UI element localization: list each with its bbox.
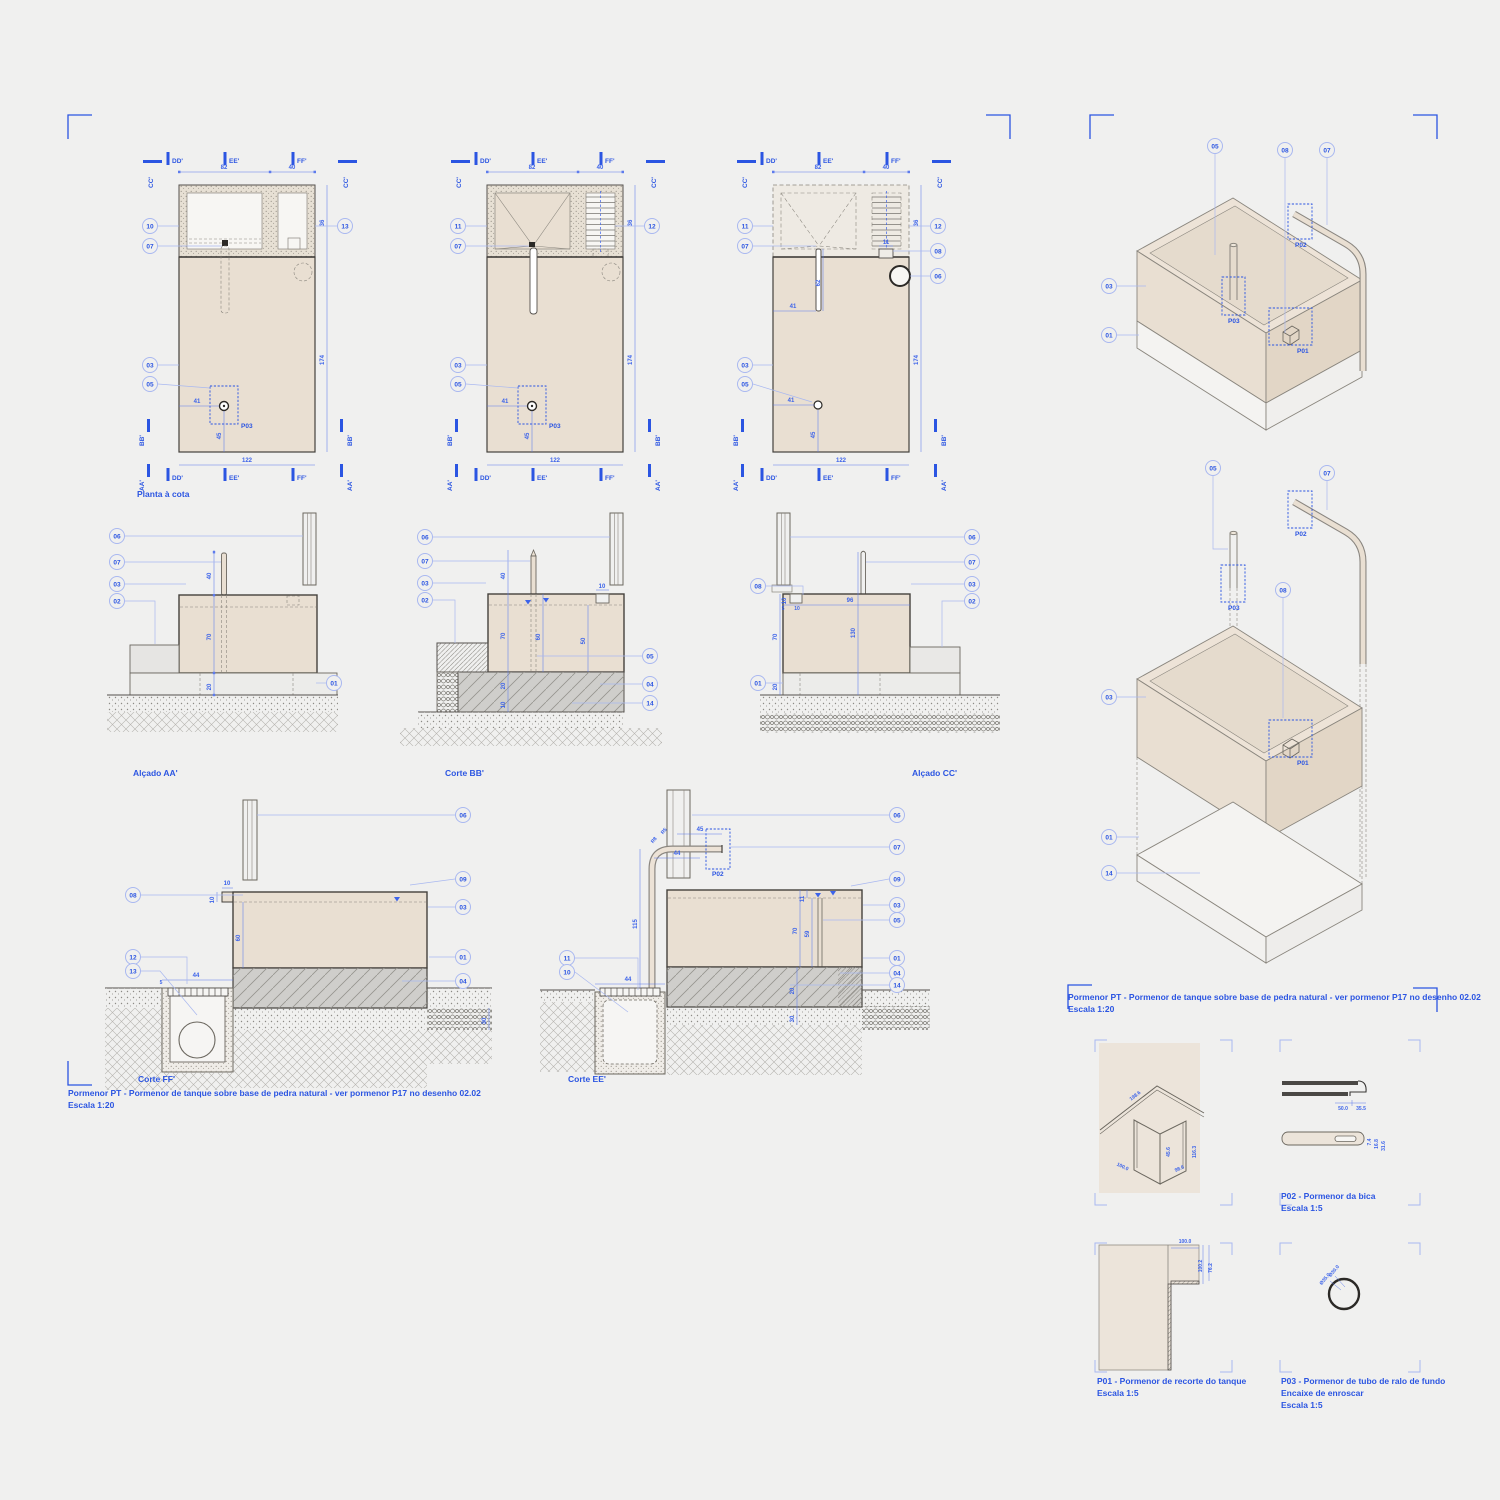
callout: 02: [421, 597, 429, 604]
dim-label: 174: [628, 354, 634, 365]
section-label-cc: CC': [937, 177, 944, 188]
section-label-bb: BB': [941, 435, 948, 446]
dim-label: 116.3: [1192, 1146, 1198, 1158]
detail-caption: P02 - Pormenor da bica: [1281, 1191, 1376, 1201]
wall: [610, 513, 623, 585]
spout-pipe: [531, 556, 536, 594]
axon-caption-line1: Pormenor PT - Pormenor de tanque sobre b…: [1068, 992, 1481, 1002]
stone-block: [437, 672, 458, 712]
callout: 14: [893, 982, 901, 989]
dim-label: 115: [633, 919, 639, 929]
callout: 03: [968, 581, 976, 588]
p03-detail-box: [1221, 565, 1245, 602]
drawing-sheet-svg: CC' CC' DD' EE' FF' DD' EE' FF' BB' BB' …: [0, 0, 1500, 1500]
dim-label: 40: [597, 165, 604, 171]
channel-grate: [168, 988, 228, 996]
detail-p01-recorte: 100.0 100.2 76.2 P01 - Pormenor de recor…: [1097, 1239, 1247, 1398]
callout: 12: [934, 223, 942, 230]
dim-label: 5: [782, 606, 785, 612]
dim-label: 36: [320, 219, 326, 226]
detail-caption: P01 - Pormenor de recorte do tanque: [1097, 1376, 1247, 1386]
sheet-caption-line2: Escala 1:20: [68, 1100, 115, 1110]
callout: 05: [146, 381, 154, 388]
p03-label: P03: [1228, 605, 1240, 612]
dim-label: 11: [800, 895, 806, 902]
dim-label: 62: [816, 279, 822, 286]
architectural-sheet: CC' CC' DD' EE' FF' DD' EE' FF' BB' BB' …: [0, 0, 1500, 1500]
base-slab: [783, 673, 960, 695]
section-label-cc: CC': [456, 177, 463, 188]
callout: 09: [893, 876, 901, 883]
detail-caption: P03 - Pormenor de tubo de ralo de fundo: [1281, 1376, 1445, 1386]
dim-label: 7.4: [1367, 1138, 1373, 1145]
view-title: Alçado CC': [912, 768, 957, 778]
callout: 14: [1105, 870, 1113, 877]
callout: 05: [1211, 143, 1219, 150]
dim-label: R8: [650, 836, 659, 845]
section-label-ff: FF': [605, 475, 615, 482]
callout: 03: [113, 581, 121, 588]
dim-label: 60: [536, 633, 542, 640]
dim-label: 41: [788, 398, 795, 404]
dim-label: 20: [207, 683, 213, 690]
base-slab: [130, 673, 337, 695]
dim-label: 82: [815, 165, 822, 171]
section-label-bb: BB': [139, 435, 146, 446]
callout: 06: [968, 534, 976, 541]
section-label-aa: AA': [733, 480, 740, 491]
callout: 05: [646, 653, 654, 660]
dim-label: 100.2: [1198, 1260, 1204, 1273]
tank: [233, 892, 427, 968]
dim-label: 44: [674, 851, 681, 857]
axon2-base-slab: [1137, 802, 1362, 963]
dim-label: 70: [793, 927, 799, 934]
dim-label: 44: [193, 973, 200, 979]
section-label-ee: EE': [823, 475, 834, 482]
callout: 07: [893, 844, 901, 851]
section-label-ee: EE': [537, 475, 548, 482]
callout: 10: [563, 969, 571, 976]
detail-caption: Escala 1:5: [1281, 1400, 1323, 1410]
callout: 01: [459, 954, 467, 961]
ground-subgrade: [400, 728, 662, 746]
callout: 05: [893, 917, 901, 924]
ground-gravel: [427, 988, 492, 1008]
axon2-spout-outline: [1294, 502, 1363, 664]
section-label-ff: FF': [891, 475, 901, 482]
dim-label: 10: [210, 896, 216, 903]
dim-label: 96: [847, 598, 854, 604]
dim-label: 10: [501, 701, 507, 708]
section-label-dd: DD': [480, 158, 491, 165]
dim-label: 40: [207, 572, 213, 579]
dim-label: 45: [217, 432, 223, 439]
tank: [488, 594, 624, 672]
callout: 01: [330, 680, 338, 687]
callout: 05: [741, 381, 749, 388]
dim-label: 41: [194, 399, 201, 405]
tank-ledge: [222, 892, 233, 902]
elevation-cc: 10 5 10 96 130 70 20 08 01 06 07 03 02 A…: [751, 513, 1001, 778]
callout: 14: [646, 700, 654, 707]
callout: 01: [1105, 332, 1113, 339]
callout: 04: [459, 978, 467, 985]
plan1-linework: [179, 185, 315, 452]
drain-plug: [814, 401, 822, 409]
callout: 04: [893, 970, 901, 977]
dim-label: 45: [697, 827, 704, 833]
callout: 12: [129, 954, 137, 961]
dim-label: 122: [836, 458, 847, 464]
ground-subgrade: [107, 712, 338, 732]
section-label-dd: DD': [766, 475, 777, 482]
overflow-notch: [879, 249, 893, 258]
dim-label: 40: [883, 165, 890, 171]
dim-label: 20: [790, 987, 796, 994]
callout: 13: [341, 223, 349, 230]
faucet-pipe-section: [890, 266, 910, 286]
dim-label: 45.6: [1166, 1147, 1172, 1157]
callout: 03: [741, 362, 749, 369]
tank-corner-cut: [1099, 1245, 1199, 1370]
dim-label: 45: [811, 431, 817, 438]
callout: 07: [968, 559, 976, 566]
section-label-ff: FF': [297, 158, 307, 165]
view-title: Corte FF': [138, 1074, 175, 1084]
p01-label: P01: [1297, 348, 1309, 355]
section-label-cc: CC': [343, 177, 350, 188]
drain-outlet: [529, 242, 535, 247]
sheet-caption-line1: Pormenor PT - Pormenor de tanque sobre b…: [68, 1088, 481, 1098]
callout: 06: [421, 534, 429, 541]
callout: 07: [454, 243, 462, 250]
section-label-ee: EE': [823, 158, 834, 165]
stone-step: [130, 645, 179, 673]
stone-step: [910, 647, 960, 673]
section-label-cc: CC': [651, 177, 658, 188]
callout: 13: [129, 968, 137, 975]
section-label-bb: BB': [447, 435, 454, 446]
dim-label: 59: [805, 930, 811, 937]
detail-p03-tubo: Ø35.0 Ø30.0 P03 - Pormenor de tubo de ra…: [1281, 1264, 1445, 1410]
dim-label: 130: [851, 627, 857, 638]
dim-label: 100.0: [1179, 1239, 1192, 1245]
dim-label: 50: [581, 637, 587, 644]
dim-label: 50.0: [1338, 1106, 1348, 1112]
spout-slot: [1335, 1136, 1356, 1142]
plan2-linework: [487, 185, 623, 452]
callout: 07: [741, 243, 749, 250]
callout: 11: [742, 223, 749, 230]
plan-view-1: CC' CC' DD' EE' FF' DD' EE' FF' BB' BB' …: [137, 152, 357, 499]
dim-label: 174: [320, 354, 326, 365]
axonometric-assembled: P02 P03 P01 05 08 07 03 01: [1102, 139, 1364, 431]
callout: 01: [893, 955, 901, 962]
callout: 10: [146, 223, 154, 230]
callout: 04: [646, 681, 654, 688]
dim-label: 70: [773, 633, 779, 640]
dim-label: 10: [599, 584, 606, 590]
section-ee: P02 45 44 115 11 70 59 20 30 44 R8 R5 11…: [540, 790, 930, 1084]
spout-pipe: [222, 553, 227, 595]
callout: 01: [754, 680, 762, 687]
section-label-dd: DD': [480, 475, 491, 482]
callout: 02: [113, 598, 121, 605]
callout: 08: [934, 248, 942, 255]
dim-label: 174: [914, 354, 920, 365]
stone-step-hatched: [437, 643, 488, 672]
p03-label: P03: [549, 423, 561, 430]
dim-label: 122: [242, 458, 253, 464]
axon-caption-line2: Escala 1:20: [1068, 1004, 1115, 1014]
callout: 03: [459, 904, 467, 911]
section-label-ff: FF': [891, 158, 901, 165]
channel-grate: [600, 988, 660, 996]
section-label-ee: EE': [229, 158, 240, 165]
detail-caption: Escala 1:5: [1281, 1203, 1323, 1213]
dim-label: 40: [501, 572, 507, 579]
dim-label: 30: [482, 1017, 488, 1024]
axonometric-exploded: P02 P03 P01 05 07 08 03 01 14 Pormenor P…: [1068, 461, 1481, 1015]
detail-p02-bica: 50.0 35.5 7.4 16.8 31.6 P02 - Pormenor d…: [1281, 1081, 1387, 1213]
callout: 08: [754, 583, 762, 590]
dim-label: 20: [773, 683, 779, 690]
plan-view-3: CC' CC' DD' EE' FF' DD' EE' FF' BB' BB' …: [733, 152, 951, 491]
section-label-bb: BB': [655, 435, 662, 446]
p03-label: P03: [241, 423, 253, 430]
callout: 06: [113, 533, 121, 540]
tank-body-plan3: [773, 257, 909, 452]
callout: 06: [893, 812, 901, 819]
dim-label: 31.6: [1381, 1141, 1387, 1151]
wall: [243, 800, 257, 880]
basin: [495, 193, 570, 249]
ground-gravel: [760, 695, 1000, 713]
dim-label: 36: [914, 219, 920, 226]
p02-label: P02: [1295, 531, 1307, 538]
section-label-aa: AA': [447, 480, 454, 491]
wall: [303, 513, 316, 585]
dim-label: 10: [782, 597, 788, 604]
callout: 11: [455, 223, 462, 230]
p02-label: P02: [1295, 242, 1307, 249]
dim-label: 11: [883, 240, 890, 246]
ground-gravel: [107, 695, 338, 712]
dim-label: 60: [236, 934, 242, 941]
detail-caption: Encaixe de enroscar: [1281, 1388, 1364, 1398]
dim-label: 41: [502, 399, 509, 405]
callout: 01: [1105, 834, 1113, 841]
section-bb: 40 70 20 10 60 50 10 06 07 03 02 05 04 1…: [400, 513, 662, 778]
callout: 02: [968, 598, 976, 605]
callout: 08: [129, 892, 137, 899]
callout: 09: [459, 876, 467, 883]
dim-label: 70: [207, 633, 213, 640]
ground-pebble: [760, 713, 1000, 733]
dim-label: 45: [525, 432, 531, 439]
drain-pipe: [530, 248, 537, 314]
section-label-cc: CC': [742, 177, 749, 188]
wall: [777, 513, 790, 585]
callout: 07: [113, 559, 121, 566]
axon2-tank: [1137, 626, 1362, 839]
section-ff: 10 10 60 44 5 30 08 12 13 06 09 03 01 04…: [68, 800, 492, 1110]
detail-iso-recess: 198.6 45.6 116.3 100.0 98.6: [1099, 1043, 1204, 1193]
detail-caption: Escala 1:5: [1097, 1388, 1139, 1398]
p02-label: P02: [712, 871, 724, 878]
dim-label: 82: [529, 165, 536, 171]
section-label-aa: AA': [655, 480, 662, 491]
section-label-dd: DD': [172, 475, 183, 482]
section-label-dd: DD': [766, 158, 777, 165]
p03-label: P03: [1228, 318, 1240, 325]
dim-label: 36: [628, 219, 634, 226]
callout: 07: [146, 243, 154, 250]
channel-liner: [603, 1000, 657, 1064]
dim-label: 10: [224, 881, 231, 887]
tank: [783, 594, 910, 673]
dim-label: 10: [794, 606, 800, 612]
section-label-aa: AA': [347, 480, 354, 491]
p01-label: P01: [1297, 760, 1309, 767]
section-label-cc: CC': [148, 177, 155, 188]
callout: 05: [1209, 465, 1217, 472]
section-label-ee: EE': [537, 158, 548, 165]
section-label-ff: FF': [605, 158, 615, 165]
drain-pipe-section: [179, 1022, 215, 1058]
dim-label: 70: [501, 632, 507, 639]
view-title: Alçado AA': [133, 768, 178, 778]
dim-label: 30: [790, 1015, 796, 1022]
drain-outlet: [222, 240, 228, 246]
dim-label: 35.5: [1356, 1106, 1366, 1112]
callout: 06: [934, 273, 942, 280]
plan3-linework: [773, 185, 910, 452]
callout: 12: [648, 223, 656, 230]
callout: 07: [421, 558, 429, 565]
dim-label: 122: [550, 458, 561, 464]
section-label-aa: AA': [941, 480, 948, 491]
tank: [667, 890, 862, 967]
callout: 11: [564, 955, 571, 962]
section-label-ff: FF': [297, 475, 307, 482]
dim-label: 16.8: [1374, 1139, 1380, 1149]
overflow-notch: [790, 594, 802, 603]
section-label-dd: DD': [172, 158, 183, 165]
callout: 07: [1323, 470, 1331, 477]
drain-pipe-ring: [1329, 1279, 1359, 1309]
section-label-bb: BB': [347, 435, 354, 446]
callout: 03: [146, 362, 154, 369]
callout: 06: [459, 812, 467, 819]
callout: 08: [1281, 147, 1289, 154]
callout: 03: [421, 580, 429, 587]
callout: 03: [454, 362, 462, 369]
plan-view-2: CC' CC' DD' EE' FF' DD' EE' FF' BB' BB' …: [447, 152, 665, 491]
dim-label: 40: [289, 165, 296, 171]
callout: 08: [1279, 587, 1287, 594]
dim-label: 41: [790, 304, 797, 310]
dim-label: 76.2: [1208, 1263, 1214, 1273]
callout: 03: [893, 902, 901, 909]
view-title: Corte EE': [568, 1074, 606, 1084]
dim-label: Ø30.0: [1328, 1264, 1341, 1278]
dim-label: 44: [625, 977, 632, 983]
axon2-spout: [1294, 502, 1363, 664]
callout: 03: [1105, 283, 1113, 290]
elevation-aa: 40 70 20 06 07 03 02 01 Alçado AA': [107, 513, 342, 778]
callout: 07: [1323, 147, 1331, 154]
callout: 05: [454, 381, 462, 388]
axon2-standpipe: [1230, 531, 1237, 588]
callout: 03: [1105, 694, 1113, 701]
dim-label: 82: [221, 165, 228, 171]
dim-label: 5: [160, 980, 163, 986]
ground-gravel: [418, 712, 624, 728]
overflow-notch: [596, 594, 609, 603]
section-label-ee: EE': [229, 475, 240, 482]
plan-title: Planta à cota: [137, 489, 190, 499]
dim-label: 20: [501, 682, 507, 689]
view-title: Corte BB': [445, 768, 484, 778]
section-label-bb: BB': [733, 435, 740, 446]
